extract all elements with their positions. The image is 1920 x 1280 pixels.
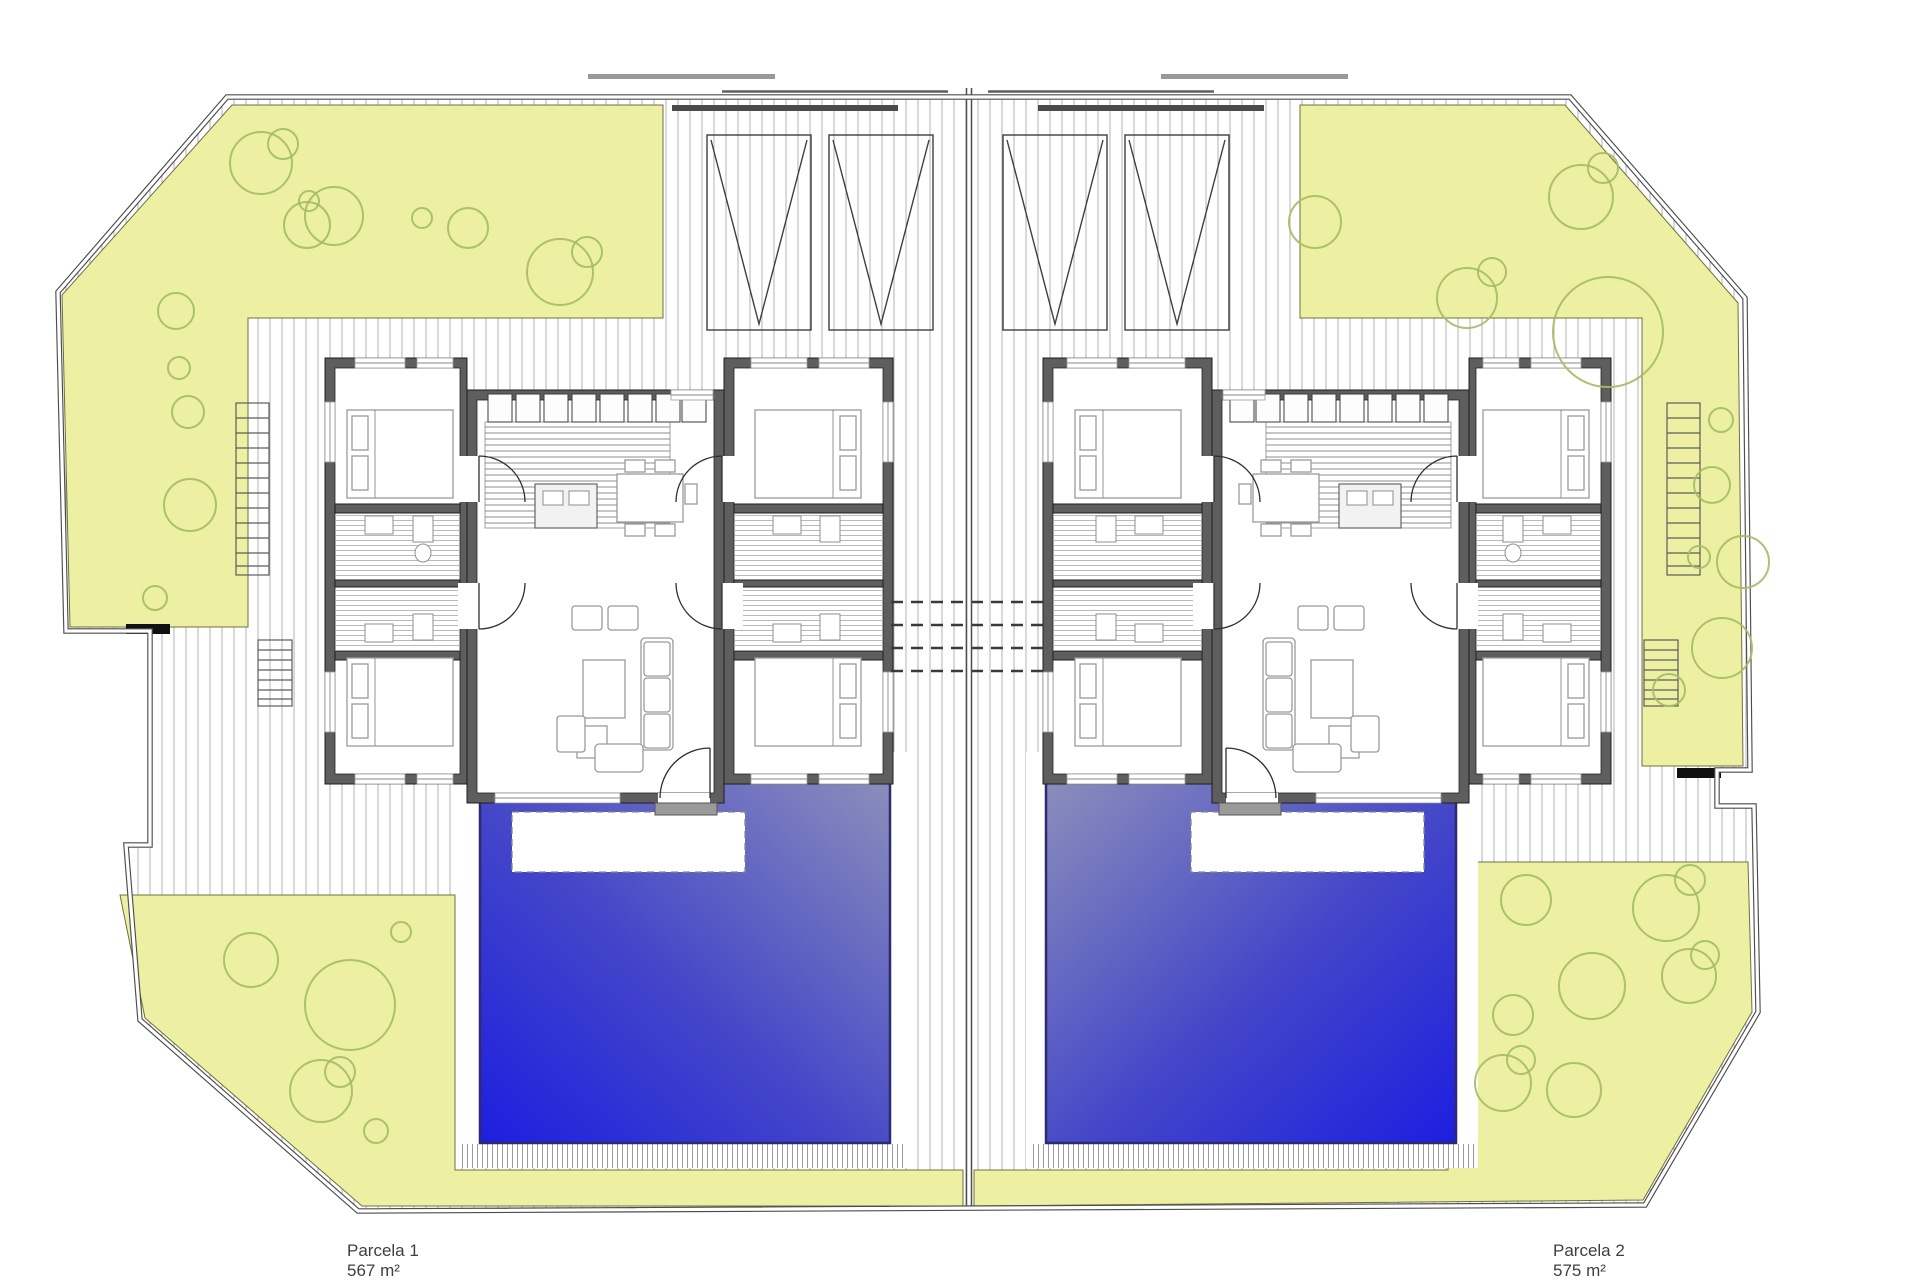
site-plan-page: Parcela 1 567 m² Parcela 2 575 m²: [0, 0, 1920, 1280]
parcel-1-area: 567 m²: [347, 1261, 400, 1280]
floor-plan-svg: Parcela 1 567 m² Parcela 2 575 m²: [0, 0, 1920, 1280]
parcel-labels: Parcela 1 567 m² Parcela 2 575 m²: [347, 1241, 1625, 1280]
parcel-1-label: Parcela 1: [347, 1241, 419, 1260]
parcel-2-area: 575 m²: [1553, 1261, 1606, 1280]
site: Parcela 1 567 m² Parcela 2 575 m²: [58, 74, 1769, 1280]
parcel-2-label: Parcela 2: [1553, 1241, 1625, 1260]
